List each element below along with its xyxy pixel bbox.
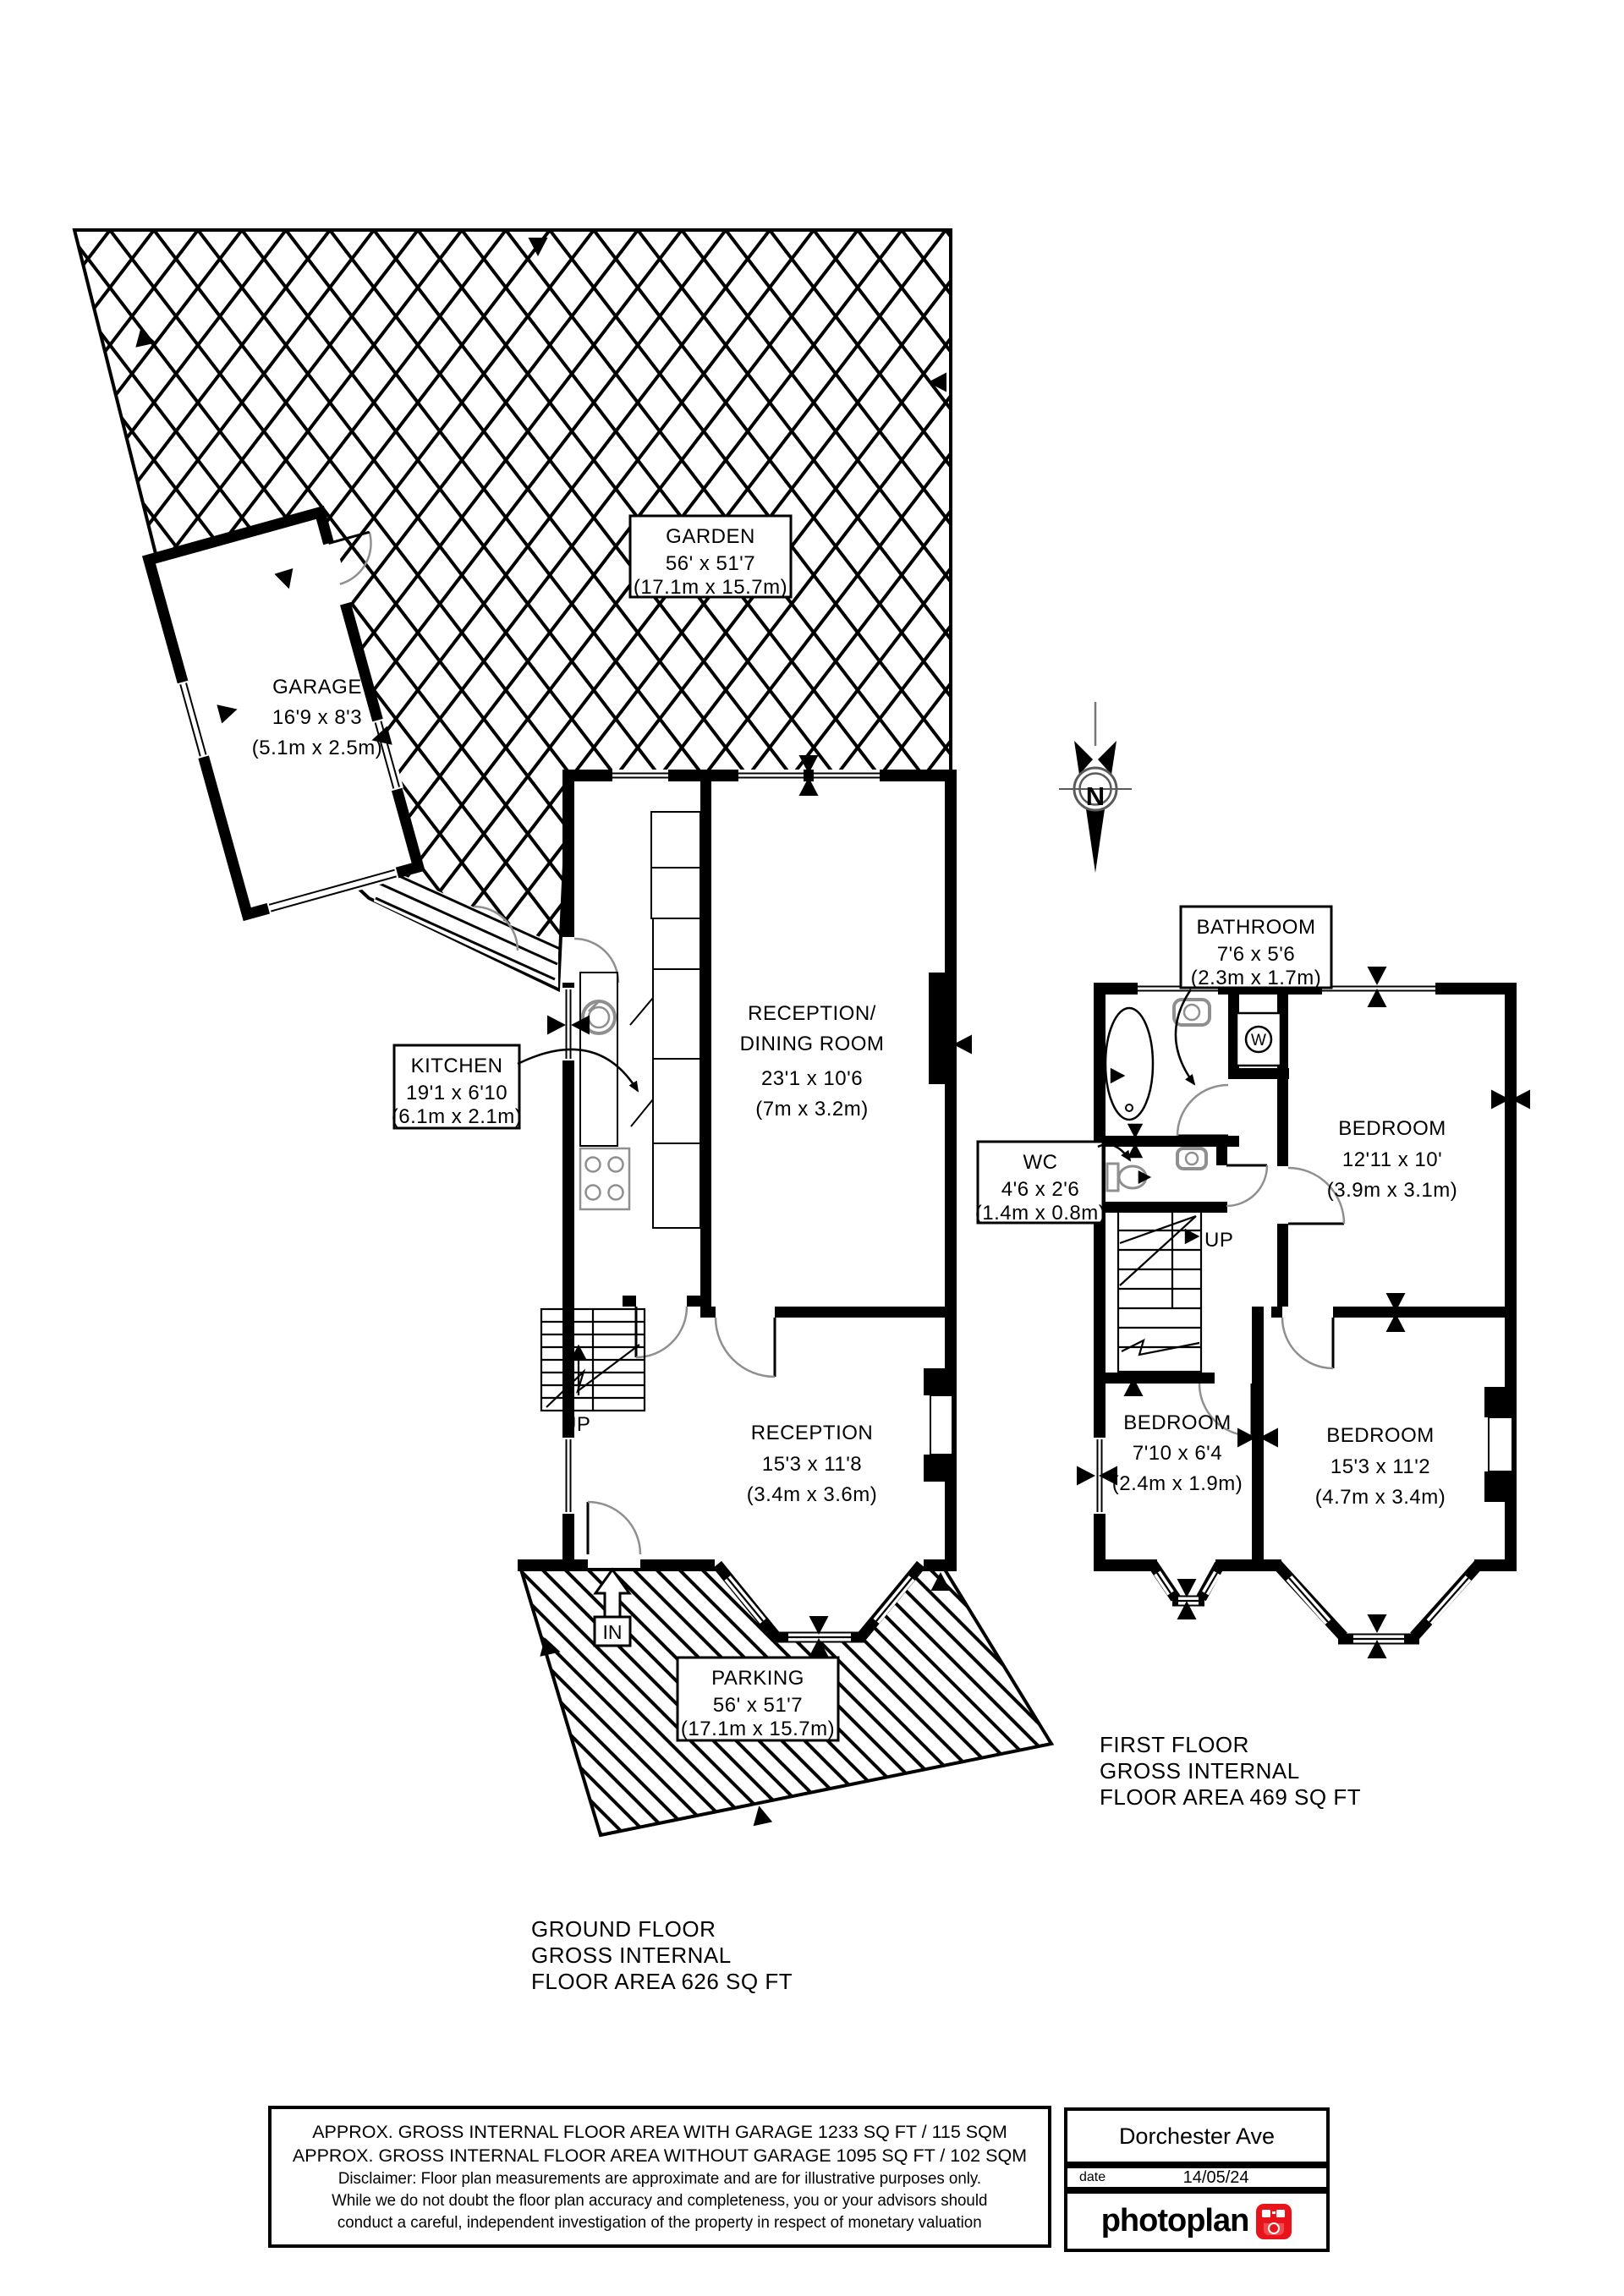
date-box: date 14/05/24 (1064, 2165, 1330, 2190)
parking-label: PARKING 56' x 51'7 (17.1m x 15.7m) (678, 1658, 838, 1740)
garage-name: GARAGE (272, 676, 362, 699)
reception-dining-metric: (7m x 3.2m) (755, 1098, 869, 1121)
first-floor-caption: FIRST FLOOR GROSS INTERNAL FLOOR AREA 46… (1100, 1732, 1361, 1810)
front-bedroom-name: BEDROOM (1326, 1424, 1435, 1447)
first-caption-line3: FLOOR AREA 469 SQ FT (1100, 1784, 1361, 1810)
reception-dining-name2: DINING ROOM (740, 1033, 885, 1055)
disclaimer-line2: While we do not doubt the floor plan acc… (332, 2191, 987, 2211)
ground-stairs-label: UP (562, 1413, 590, 1436)
small-bedroom-name: BEDROOM (1123, 1411, 1232, 1434)
rear-bedroom-label: BEDROOM 12'11 x 10' (3.9m x 3.1m) (1327, 1117, 1458, 1202)
small-bedroom-imperial: 7'10 x 6'4 (1133, 1442, 1222, 1465)
first-floor-plan: W (1094, 983, 1517, 1639)
bathroom-metric: (2.3m x 1.7m) (1191, 967, 1322, 989)
washing-machine-icon: W (1237, 1013, 1281, 1066)
date-label: date (1079, 2170, 1106, 2185)
bathroom-imperial: 7'6 x 5'6 (1217, 943, 1295, 966)
reception-label: RECEPTION 15'3 x 11'8 (3.4m x 3.6m) (747, 1422, 878, 1506)
dining-chimney-breast (929, 973, 945, 1084)
brand-name: photoplan (1101, 2203, 1249, 2239)
kitchen-rear-window (612, 770, 668, 781)
date-value: 14/05/24 (1106, 2168, 1326, 2188)
property-name: Dorchester Ave (1119, 2123, 1275, 2150)
rear-bedroom-metric: (3.9m x 3.1m) (1327, 1179, 1458, 1202)
garage-metric: (5.1m x 2.5m) (252, 737, 383, 759)
area-without-garage: APPROX. GROSS INTERNAL FLOOR AREA WITHOU… (293, 2145, 1027, 2167)
brand-box: photoplan (1064, 2190, 1330, 2252)
washer-label: W (1251, 1032, 1266, 1049)
garden-imperial: 56' x 51'7 (666, 552, 755, 575)
entrance-label-text: IN (603, 1621, 623, 1643)
garage-imperial: 16'9 x 8'3 (272, 706, 362, 729)
ground-caption-line3: FLOOR AREA 626 SQ FT (531, 1969, 793, 1994)
footer-info-box: APPROX. GROSS INTERNAL FLOOR AREA WITH G… (268, 2106, 1051, 2248)
kitchen-imperial: 19'1 x 6'10 (406, 1082, 507, 1104)
wc-name: WC (1023, 1151, 1058, 1174)
garden-label: GARDEN 56' x 51'7 (17.1m x 15.7m) (630, 516, 791, 599)
first-caption-line1: FIRST FLOOR (1100, 1732, 1249, 1757)
bathroom-name: BATHROOM (1197, 916, 1316, 939)
kitchen-name: KITCHEN (411, 1055, 503, 1077)
property-name-box: Dorchester Ave (1064, 2107, 1330, 2165)
ground-floor-caption: GROUND FLOOR GROSS INTERNAL FLOOR AREA 6… (531, 1916, 793, 1994)
first-stairs-label: UP (1204, 1229, 1233, 1252)
floorplan-page: IN GARDEN 56' x 51'7 (17.1m x 15.7m) GAR… (0, 0, 1624, 2296)
hall-side-window (562, 1438, 574, 1514)
front-bedroom-label: BEDROOM 15'3 x 11'2 (4.7m x 3.4m) (1315, 1424, 1446, 1509)
reception-imperial: 15'3 x 11'8 (762, 1453, 862, 1476)
north-compass-icon: N (1059, 702, 1132, 873)
small-bedroom-metric: (2.4m x 1.9m) (1112, 1472, 1243, 1495)
ground-floor-plan (518, 770, 957, 1639)
reception-dining-imperial: 23'1 x 10'6 (761, 1067, 863, 1090)
reception-dining-name1: RECEPTION/ (748, 1002, 876, 1025)
area-with-garage: APPROX. GROSS INTERNAL FLOOR AREA WITH G… (312, 2122, 1007, 2143)
kitchen-metric: (6.1m x 2.1m) (392, 1105, 523, 1128)
disclaimer-line1: Disclaimer: Floor plan measurements are … (338, 2169, 981, 2189)
garden-metric: (17.1m x 15.7m) (634, 576, 787, 599)
floor-plan-svg: IN GARDEN 56' x 51'7 (17.1m x 15.7m) GAR… (0, 0, 1624, 2296)
wc-metric: (1.4m x 0.8m) (975, 1202, 1106, 1225)
disclaimer-line3: conduct a careful, independent investiga… (337, 2213, 982, 2233)
reception-name: RECEPTION (751, 1422, 874, 1444)
parking-name: PARKING (711, 1667, 804, 1690)
parking-metric: (17.1m x 15.7m) (681, 1718, 835, 1740)
rear-bedroom-imperial: 12'11 x 10' (1342, 1148, 1442, 1171)
first-caption-line2: GROSS INTERNAL (1100, 1758, 1300, 1784)
ground-caption-line1: GROUND FLOOR (531, 1916, 716, 1942)
front-bedroom-imperial: 15'3 x 11'2 (1330, 1455, 1430, 1478)
rear-bedroom-name: BEDROOM (1338, 1117, 1446, 1140)
photoplan-logo-icon (1255, 2203, 1292, 2240)
wc-imperial: 4'6 x 2'6 (1001, 1178, 1079, 1201)
garden-name: GARDEN (666, 525, 755, 548)
parking-imperial: 56' x 51'7 (713, 1694, 803, 1717)
reception-metric: (3.4m x 3.6m) (747, 1483, 878, 1506)
front-bedroom-metric: (4.7m x 3.4m) (1315, 1486, 1446, 1509)
ground-caption-line2: GROSS INTERNAL (531, 1943, 732, 1968)
entrance-label: IN (595, 1617, 630, 1646)
north-label: N (1086, 781, 1105, 811)
